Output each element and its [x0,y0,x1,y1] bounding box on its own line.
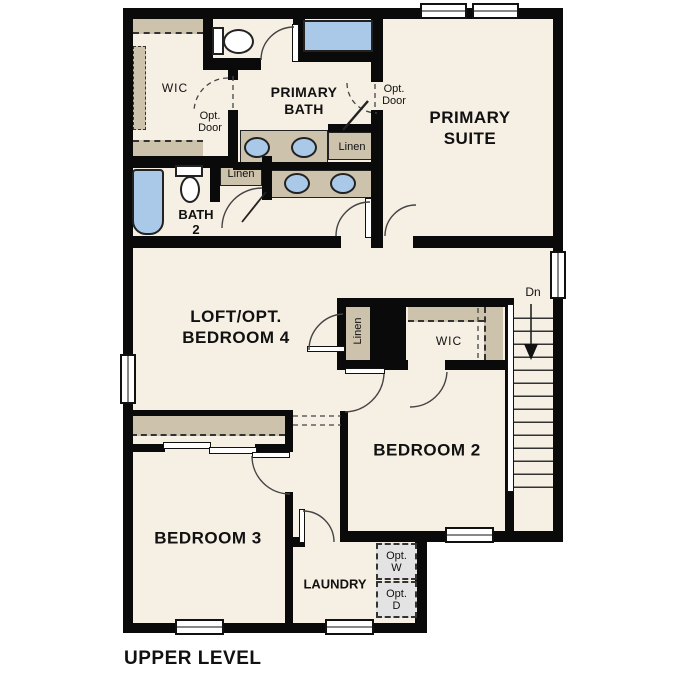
sheet-title: UPPER LEVEL [124,648,261,670]
opt-washer-label-line1: Opt. [386,550,407,562]
wall-closet3-front-a [123,444,165,452]
wic1-shelf-bottom [133,140,203,156]
loft-line1: LOFT/OPT. [182,306,289,327]
wic2-label: WIC [436,334,462,348]
wic2-shelf-right [484,307,503,360]
shower-fixture [303,20,373,52]
window-bedroom3 [175,619,224,635]
door-panel-toiletroom [292,24,299,62]
loft-label: LOFT/OPT. BEDROOM 4 [182,306,289,348]
chase-solid [370,302,406,362]
opt-door-label-suite: Opt. Door [382,83,406,107]
sink-3 [284,173,310,194]
linen1-label: Linen [339,141,366,153]
window-stair-right [550,251,566,299]
wall-closet3-pillar [285,410,293,452]
bath2-label: BATH 2 [178,207,213,237]
wall-suite-door-jamb [371,196,383,248]
wall-suite-bottom [413,236,563,248]
bath2-line2: 2 [178,222,213,237]
toilet-bowl-1 [223,29,254,54]
secondary-vanity-counter [266,170,373,198]
wall-wic1-right-b [228,110,238,158]
primary-suite-line1: PRIMARY [429,107,510,128]
wall-core-bottom-b [445,360,513,370]
door-panel-bedroom2 [345,368,385,374]
loft-line2: BEDROOM 4 [182,327,289,348]
primary-suite-label: PRIMARY SUITE [429,107,510,149]
door-panel-laundry [299,509,305,543]
primary-suite-line2: SUITE [429,128,510,149]
wall-bed2-left [340,411,348,537]
window-laundry [325,619,374,635]
opt-door-wic1-line2: Door [198,122,222,134]
sink-1 [244,137,270,158]
wall-shower-bottom [293,52,377,62]
opt-door-suite-line1: Opt. [382,83,406,95]
opt-dryer-label-line1: Opt. [386,588,407,600]
wic1-label: WIC [162,81,188,95]
closet3-bypass-door-a [163,442,211,449]
wall-bed3-right-b [285,547,293,627]
primary-bath-label: PRIMARY BATH [271,84,338,118]
opt-dryer-box: Opt. D [376,581,417,618]
laundry-label: LAUNDRY [303,577,366,592]
bedroom3-closet-shelf [131,416,285,436]
door-panel-linen-hall [307,346,345,352]
staircase [513,306,553,488]
opt-door-wic1-line1: Opt. [198,110,222,122]
wall-bottom [123,623,423,633]
sink-2 [291,137,317,158]
wall-vanity-divider [233,162,383,170]
wall-linen1-top [328,124,378,132]
wall-left [123,8,133,633]
opt-door-label-wic1: Opt. Door [198,110,222,134]
linen3-label: Linen [352,318,364,345]
window-suite-2 [472,3,519,19]
toilet-bowl-2 [180,176,200,203]
wall-closet3-top [123,410,293,416]
linen2-label: Linen [228,168,255,180]
wic1-shelf-left [133,46,146,130]
bath2-line1: BATH [178,207,213,222]
stairs-dn-label: Dn [525,286,540,298]
door-panel-vanity-hall [365,198,372,238]
window-loft-left [120,354,136,404]
closet3-bypass-door-b [209,447,257,454]
bedroom2-label: BEDROOM 2 [373,440,480,461]
door-panel-bedroom3 [252,452,290,458]
stair-handrail [507,304,514,492]
wall-linen2-left [210,156,220,202]
bedroom3-label: BEDROOM 3 [154,528,261,549]
opt-dryer-label-line2: D [393,600,401,612]
wic2-shelf-top [408,307,484,322]
opt-door-suite-line2: Door [382,95,406,107]
window-bedroom2 [445,527,494,543]
wic1-shelf-top [133,19,203,34]
wall-bath2-loft [123,236,341,248]
wall-bed3-right-a [285,492,293,542]
floor-plan: Opt. W Opt. D [0,0,687,687]
opt-washer-label-line2: W [391,562,401,574]
primary-bath-line1: PRIMARY [271,84,338,101]
wall-linen2-right [262,156,272,200]
sink-4 [330,173,356,194]
wall-core-top [337,298,513,307]
wall-wic1-right-a [228,60,238,80]
window-suite-1 [420,3,467,19]
exterior-cutout [427,542,563,633]
primary-bath-line2: BATH [271,101,338,118]
opt-washer-box: Opt. W [376,543,417,580]
bathtub-fixture [132,169,164,235]
